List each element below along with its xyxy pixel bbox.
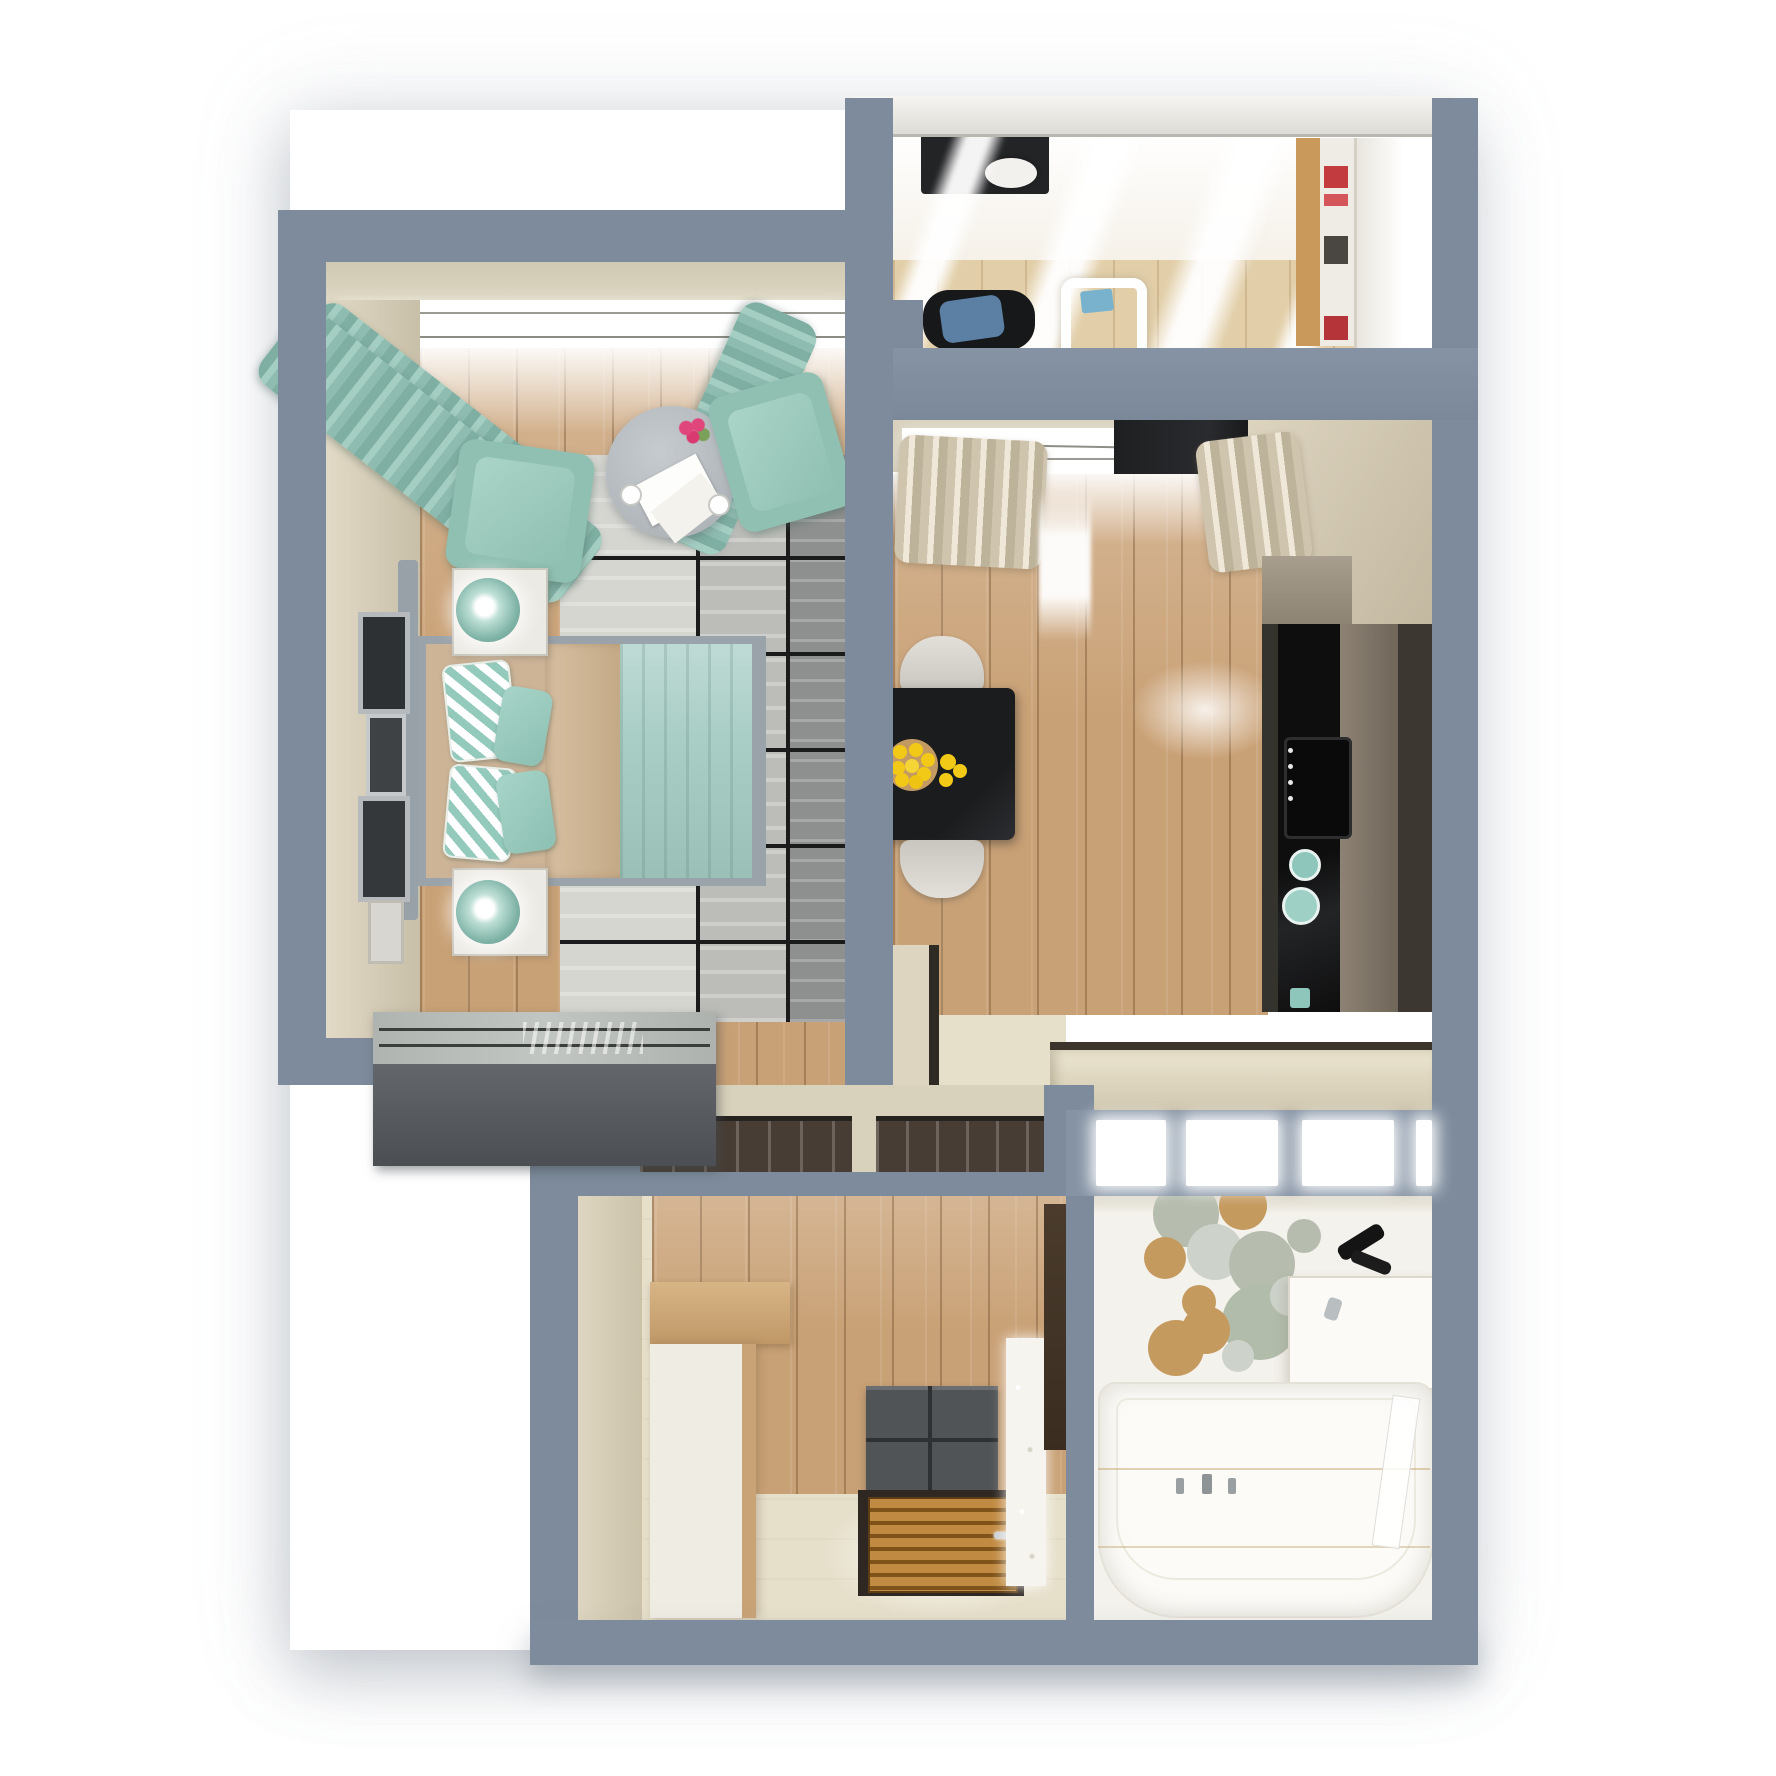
coffee-cup	[620, 484, 642, 506]
bed-foot-rail	[752, 644, 764, 878]
monitor-screen	[1080, 288, 1114, 313]
tub-faucet-handle	[1228, 1478, 1236, 1494]
dark-book	[1324, 236, 1348, 264]
bedroom-sill	[326, 262, 845, 300]
kitchen-bottom-counter	[1050, 1050, 1432, 1112]
sideboard-body	[650, 1344, 756, 1618]
tub-faucet-handle	[1176, 1478, 1184, 1494]
doorway-band-bottom-strip	[578, 1172, 1094, 1196]
coffee-cup	[708, 494, 730, 516]
bathroom-top-shadow	[1094, 1196, 1432, 1214]
tub-faucet	[1202, 1474, 1212, 1494]
washbasin-counter	[1288, 1276, 1436, 1390]
wall-frame	[358, 796, 410, 902]
kitchen-door-mat	[876, 1116, 1044, 1177]
flower-bouquet	[676, 416, 710, 446]
entrance-door	[868, 1497, 1018, 1593]
beige-curtain-left	[894, 434, 1048, 570]
red-books	[1324, 194, 1348, 206]
bathroom-tile-joint	[1098, 1468, 1430, 1470]
office-chair-cushion	[938, 294, 1005, 344]
shoe-dresser-seam	[928, 1386, 932, 1498]
sideboard-top	[650, 1282, 790, 1344]
kitchen-unit-left-face	[1262, 624, 1278, 1012]
teal-pillow	[495, 769, 558, 855]
wall-frame	[358, 612, 410, 714]
wall-bathroom-left	[1066, 1196, 1094, 1620]
cooktop-knob	[1288, 796, 1293, 801]
rug-grid-line	[560, 556, 845, 560]
cooktop-knob	[1288, 748, 1293, 753]
bathroom-partition	[1066, 1110, 1432, 1196]
red-books	[1324, 316, 1348, 340]
kitchen-unit-right-panel	[1398, 624, 1432, 1012]
hallway-left-wall-finish	[578, 1196, 642, 1620]
wall-balcony-step	[893, 300, 923, 350]
cooktop-knob	[1288, 780, 1293, 785]
rug-grid-line	[560, 940, 845, 944]
dining-table	[880, 688, 1015, 840]
balcony-wardrobe	[1354, 138, 1432, 348]
table-lamp	[456, 880, 520, 944]
shoe-dresser-seam	[866, 1438, 998, 1442]
wall-bedroom-left	[278, 210, 326, 1085]
balcony-roof-band	[852, 96, 1452, 137]
kitchen-upper-cabinet	[1262, 556, 1352, 624]
shoe-dresser	[866, 1386, 998, 1502]
floor-plan	[0, 0, 1776, 1776]
wall-divider-bedroom-kitchen	[845, 348, 893, 1085]
beige-curtain-right	[1194, 430, 1313, 574]
kitchen-niche	[893, 945, 939, 1085]
teal-dish	[1290, 988, 1310, 1008]
bathtub-inner-rim	[1116, 1398, 1416, 1580]
bed-duvet-fold	[545, 644, 623, 878]
wall-frame	[368, 900, 404, 964]
wardrobe-hangers	[523, 1022, 643, 1054]
wall-right	[1432, 98, 1478, 1665]
teal-dish	[1289, 849, 1321, 881]
bedroom-rug-dark-column	[788, 455, 845, 1022]
wall-bottom	[530, 1620, 1478, 1665]
wardrobe-front	[373, 1064, 716, 1166]
red-books	[1324, 166, 1348, 188]
wall-frame	[366, 714, 406, 796]
balcony-wood-ledge	[1296, 138, 1320, 346]
wall-bedroom-top	[278, 210, 893, 262]
teal-dish	[1282, 887, 1320, 925]
floor-light-streak	[1039, 491, 1091, 641]
balcony-room	[893, 130, 1432, 352]
wardrobe	[373, 1012, 716, 1166]
armchair-left-cushion	[464, 456, 577, 567]
rug-grid-line	[786, 455, 790, 1022]
table-lamp	[456, 578, 520, 642]
cooktop-knob	[1288, 764, 1293, 769]
bed-teal-blanket	[620, 644, 752, 878]
cooktop	[1284, 737, 1352, 839]
floor-light-spot	[1130, 660, 1280, 760]
wall-kitchen-top	[845, 348, 1478, 420]
sparkle-curtain	[1006, 1338, 1046, 1586]
hallway-dark-panel	[1044, 1204, 1068, 1450]
